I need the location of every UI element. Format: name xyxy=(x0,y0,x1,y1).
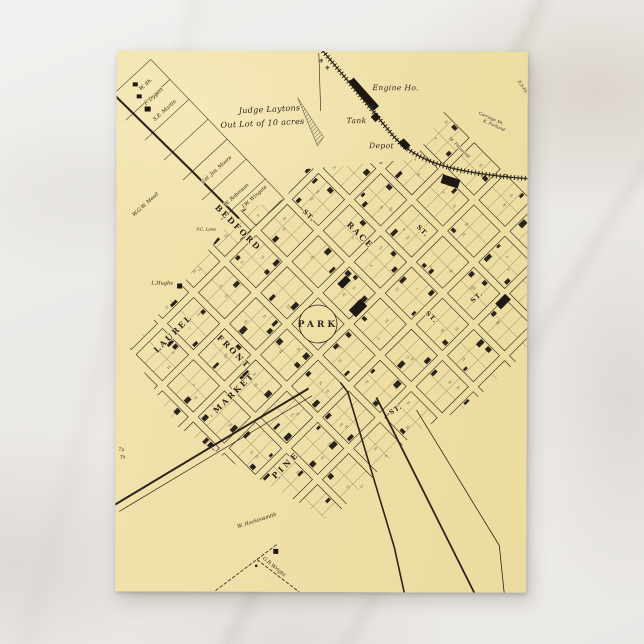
building-footprint xyxy=(312,399,321,407)
lot-number: 20 xyxy=(332,165,338,171)
lot-number: 7 xyxy=(188,327,192,331)
lot-line xyxy=(496,378,522,404)
building-footprint xyxy=(451,227,457,233)
band-lot-line xyxy=(115,59,151,100)
lot-line xyxy=(123,315,149,341)
lot-line xyxy=(237,555,263,581)
block-outline xyxy=(115,359,157,411)
street-label-st-a: ST. xyxy=(388,402,404,416)
depot-label: Depot xyxy=(368,141,394,150)
lot-number: 20 xyxy=(163,227,169,233)
lot-line xyxy=(336,467,362,493)
building-footprint xyxy=(179,246,186,253)
lot-line xyxy=(185,253,211,279)
lot-number: 27 xyxy=(164,305,170,311)
building-footprint xyxy=(424,357,432,365)
lot-number: 20 xyxy=(403,471,409,477)
building-footprint xyxy=(295,197,301,203)
lot-number: 20 xyxy=(373,446,379,452)
building-footprint xyxy=(239,325,248,334)
lot-number: 18 xyxy=(337,358,343,364)
lot-number: 26 xyxy=(405,425,411,431)
house xyxy=(255,564,258,567)
lot-line xyxy=(274,217,300,243)
building-footprint xyxy=(324,147,331,154)
lot-number: 79 xyxy=(309,196,315,202)
lot-line xyxy=(456,400,482,426)
building-footprint xyxy=(431,369,438,376)
lot-number: 8 xyxy=(180,440,184,444)
lot-line xyxy=(243,248,269,274)
building-footprint xyxy=(347,434,354,441)
lot-number: 26 xyxy=(416,172,422,178)
southwest-road xyxy=(115,388,307,505)
lot-line xyxy=(527,223,528,249)
lot-number: 19 xyxy=(290,158,296,164)
lot-number: 79 xyxy=(405,235,411,241)
lot-line xyxy=(273,591,299,593)
lot-number: 10 xyxy=(341,292,347,298)
house xyxy=(133,82,138,86)
building-footprint xyxy=(272,259,280,267)
out-lot-label-line1: Judge Laytons xyxy=(237,103,301,115)
block-outline xyxy=(260,578,312,593)
building-footprint xyxy=(173,485,178,490)
lot-line xyxy=(429,373,455,399)
block-outline xyxy=(229,484,281,536)
lot-number: 78 xyxy=(130,249,136,255)
lot-number: 78 xyxy=(364,379,370,385)
block-outline xyxy=(324,50,376,70)
building-footprint xyxy=(269,137,278,146)
lot-line xyxy=(527,347,528,373)
owner-label: G.B.Wright xyxy=(261,556,287,579)
block-outline xyxy=(115,266,126,318)
large-building xyxy=(495,294,511,310)
block-outline xyxy=(291,547,343,593)
lot-number: 27 xyxy=(395,287,401,293)
lot-line xyxy=(399,93,425,119)
building-footprint xyxy=(172,343,178,349)
lot-line xyxy=(211,466,237,492)
lot-line xyxy=(279,160,305,186)
house xyxy=(273,549,278,554)
lot-line xyxy=(399,156,425,182)
lot-number: 8 xyxy=(287,156,291,160)
lot-number: 20 xyxy=(339,161,345,167)
block-outline xyxy=(136,391,188,443)
building-footprint xyxy=(258,148,267,157)
lot-number: 9 xyxy=(255,569,259,573)
building-footprint xyxy=(223,519,230,526)
lot-line xyxy=(185,191,211,217)
lot-number: 8 xyxy=(442,190,446,194)
street-label-st-b: ST. xyxy=(424,309,440,325)
building-footprint xyxy=(359,131,367,139)
lot-number: 20 xyxy=(282,216,288,222)
building-footprint xyxy=(245,553,253,561)
lot-number: 79 xyxy=(320,568,326,574)
building-footprint xyxy=(125,463,131,469)
lot-line xyxy=(341,50,367,61)
lot-line xyxy=(118,373,144,399)
building-footprint xyxy=(325,413,332,420)
lot-number: 79 xyxy=(309,255,315,261)
lot-number: 8 xyxy=(134,378,138,382)
building-footprint xyxy=(201,414,209,422)
lot-line xyxy=(211,528,237,554)
building-footprint xyxy=(428,289,435,296)
building-footprint xyxy=(311,524,317,530)
building-footprint xyxy=(170,259,176,265)
lot-number: 27 xyxy=(495,320,501,326)
lot-number: 10 xyxy=(357,109,363,115)
lot-line xyxy=(367,249,393,275)
lot-line xyxy=(310,66,336,92)
owner-label: W. Hockensmith xyxy=(237,512,278,530)
building-footprint xyxy=(511,375,520,384)
large-building xyxy=(337,275,350,288)
building-footprint xyxy=(386,496,392,502)
building-footprint xyxy=(375,525,382,532)
building-footprint xyxy=(295,567,301,573)
lot-line xyxy=(523,343,528,369)
building-footprint xyxy=(145,266,150,271)
lot-number: 18 xyxy=(253,382,259,388)
lot-number: 19 xyxy=(457,448,463,454)
building-footprint xyxy=(344,370,350,376)
lot-line xyxy=(308,564,334,590)
lot-number: 9 xyxy=(461,417,465,421)
building-footprint xyxy=(240,164,248,172)
lot-line xyxy=(364,58,390,84)
lot-number: 8 xyxy=(167,483,171,487)
building-footprint xyxy=(345,332,352,339)
lot-number: 10 xyxy=(508,193,514,199)
block-outline xyxy=(479,236,528,288)
lot-number: 20 xyxy=(123,253,129,259)
building-footprint xyxy=(140,473,148,481)
lot-line xyxy=(277,533,303,559)
house xyxy=(177,284,182,289)
lot-number: 8 xyxy=(404,96,408,100)
main-road-northwest xyxy=(115,93,239,217)
lot-line xyxy=(367,436,393,462)
lot-line xyxy=(270,151,296,177)
lot-line xyxy=(118,248,144,274)
building-footprint xyxy=(395,171,403,179)
lot-number: 7 xyxy=(246,503,250,507)
lot-number: 26 xyxy=(201,188,207,194)
lot-line xyxy=(429,436,455,462)
building-footprint xyxy=(394,67,400,73)
lot-line xyxy=(304,560,330,586)
lot-number: 18 xyxy=(166,364,172,370)
lot-line xyxy=(274,155,300,181)
building-footprint xyxy=(463,399,469,405)
lot-number: 78 xyxy=(223,233,229,239)
building-footprint xyxy=(225,494,232,501)
lot-number: 19 xyxy=(388,206,394,212)
lot-number: 7 xyxy=(416,287,420,291)
building-footprint xyxy=(233,281,240,288)
lot-number: 10 xyxy=(249,450,255,456)
building-footprint xyxy=(170,299,178,307)
lot-number: 79 xyxy=(342,532,348,538)
lot-number: 20 xyxy=(344,549,350,555)
lot-number: 26 xyxy=(249,582,255,588)
lot-number: 9 xyxy=(492,391,496,395)
building-footprint xyxy=(329,267,336,274)
building-footprint xyxy=(358,52,364,58)
building-footprint xyxy=(397,360,406,369)
band-lot-line xyxy=(183,139,227,180)
building-footprint xyxy=(212,362,219,369)
lot-number: 27 xyxy=(302,506,308,512)
owner-label: W.G.W. Mead xyxy=(131,191,160,217)
building-footprint xyxy=(357,133,366,142)
building-footprint xyxy=(497,398,506,407)
southeast-road-west-edge xyxy=(376,398,475,592)
lot-number: 18 xyxy=(461,232,467,238)
lot-number: 12 xyxy=(359,484,365,490)
lot-line xyxy=(123,253,149,279)
lot-number: 78 xyxy=(193,395,199,401)
building-footprint xyxy=(254,587,261,592)
lot-number: 8 xyxy=(434,136,438,140)
building-footprint xyxy=(451,188,457,194)
band-lot-line xyxy=(164,119,208,160)
lot-line xyxy=(492,249,518,275)
street-label-market: MARKET xyxy=(211,370,256,415)
owner-label: L.Hughs xyxy=(150,280,173,286)
building-footprint xyxy=(390,454,397,461)
building-footprint xyxy=(171,254,178,261)
lot-line xyxy=(523,280,528,306)
lot-number: 18 xyxy=(375,65,381,71)
block-outline xyxy=(115,297,157,349)
owner-label: S.E. Martin xyxy=(152,99,178,123)
lot-number: 26 xyxy=(400,102,406,108)
lot-number: 26 xyxy=(440,328,446,334)
marble-background: 7899779268981882020926791978208198789278… xyxy=(0,0,644,644)
building-footprint xyxy=(140,250,147,257)
building-footprint xyxy=(316,425,321,430)
lot-number: 8 xyxy=(376,337,380,341)
lot-number: 20 xyxy=(255,508,261,514)
lot-line xyxy=(145,399,171,425)
lot-line xyxy=(398,280,424,306)
lot-number: 9 xyxy=(329,132,333,136)
street-label-pine: PINE xyxy=(269,449,301,481)
block-outline xyxy=(510,205,528,257)
lot-line xyxy=(150,217,176,243)
lot-number: 26 xyxy=(464,222,470,228)
owner-label: W. Sh. xyxy=(138,77,154,92)
lot-line xyxy=(212,279,238,305)
lot-line xyxy=(115,430,140,456)
lot-number: 78 xyxy=(448,269,454,275)
block-outline xyxy=(478,361,528,413)
lot-number: 27 xyxy=(427,442,433,448)
lot-number: 10 xyxy=(243,319,249,325)
tank-label: Tank xyxy=(347,116,367,125)
owner-label: F. Dygert xyxy=(143,86,166,107)
building-footprint xyxy=(141,286,148,293)
block-outline xyxy=(322,516,374,568)
building-footprint xyxy=(312,178,318,184)
lot-number: 10 xyxy=(344,424,350,430)
lot-number: 18 xyxy=(208,506,214,512)
lot-number: 26 xyxy=(125,456,131,462)
lot-line xyxy=(122,439,148,465)
lot-number: 78 xyxy=(406,400,412,406)
lot-line xyxy=(115,368,140,394)
lot-number: 20 xyxy=(215,534,221,540)
lot-line xyxy=(145,275,171,301)
lot-line xyxy=(206,524,232,550)
lot-number: 26 xyxy=(163,287,169,293)
block-outline xyxy=(353,485,405,537)
lot-number: 78 xyxy=(227,423,233,429)
building-footprint xyxy=(156,243,164,251)
lot-line xyxy=(492,187,518,213)
lot-number: 20 xyxy=(451,204,457,210)
block-outline xyxy=(510,267,528,319)
lot-number: 20 xyxy=(214,536,220,542)
block-outline xyxy=(479,174,528,226)
lot-number: 26 xyxy=(303,573,309,579)
lot-number: 7 xyxy=(192,383,196,387)
railroad-line xyxy=(322,51,527,179)
block-outline xyxy=(416,423,468,475)
edge-fragment-label: Th xyxy=(120,454,126,459)
building-footprint xyxy=(291,527,298,534)
building-footprint xyxy=(200,309,206,315)
dashed-road-b xyxy=(257,560,299,592)
lot-line xyxy=(332,89,358,115)
lot-line xyxy=(176,182,202,208)
lot-number: 20 xyxy=(194,196,200,202)
lot-line xyxy=(491,374,517,400)
lot-line xyxy=(367,311,393,337)
lot-line xyxy=(527,285,528,311)
lot-line xyxy=(460,405,486,431)
block-outline xyxy=(167,422,219,474)
building-footprint xyxy=(519,193,524,198)
lot-number: 18 xyxy=(479,426,485,432)
lot-line xyxy=(184,502,210,528)
large-building xyxy=(440,174,460,188)
lot-number: 9 xyxy=(413,158,417,162)
lot-number: 18 xyxy=(454,326,460,332)
block-outline xyxy=(510,330,528,382)
building-footprint xyxy=(127,339,135,347)
lot-number: 26 xyxy=(159,236,165,242)
lot-number: 10 xyxy=(278,349,284,355)
building-footprint xyxy=(269,294,276,301)
lot-line xyxy=(242,560,268,586)
lot-number: 8 xyxy=(507,267,511,271)
lot-line xyxy=(115,284,118,310)
street-label-race-st: ST. xyxy=(415,223,431,239)
lot-number: 19 xyxy=(461,357,467,363)
railroad xyxy=(318,51,527,179)
building-footprint xyxy=(421,263,427,269)
lot-line xyxy=(176,431,202,457)
lot-number: 79 xyxy=(447,380,453,386)
lot-number: 9 xyxy=(351,236,355,240)
building-footprint xyxy=(330,565,336,571)
building-footprint xyxy=(124,335,133,344)
lot-number: 27 xyxy=(277,531,283,537)
lot-line xyxy=(331,524,357,550)
building-footprint xyxy=(305,82,312,89)
lot-number: 9 xyxy=(369,264,373,268)
lot-line xyxy=(461,218,487,244)
lot-number: 78 xyxy=(135,322,141,328)
building-footprint xyxy=(140,311,146,317)
building-footprint xyxy=(159,435,165,441)
lot-line xyxy=(367,498,393,524)
lot-number: 19 xyxy=(508,375,514,381)
building-footprint xyxy=(272,235,279,242)
lot-number: 19 xyxy=(254,454,260,460)
vintage-town-map: 7899779268981882020926791978208198789278… xyxy=(115,50,528,592)
building-footprint xyxy=(158,494,165,501)
lot-line xyxy=(115,408,117,434)
block-outline xyxy=(167,484,219,536)
lot-line xyxy=(207,462,233,488)
building-footprint xyxy=(267,99,272,104)
lot-line xyxy=(367,373,393,399)
lot-line xyxy=(465,409,491,435)
building-footprint xyxy=(399,276,407,284)
building-footprint xyxy=(298,160,305,167)
house xyxy=(145,106,151,111)
building-footprint xyxy=(407,120,416,129)
lot-number: 9 xyxy=(145,415,149,419)
lot-line xyxy=(335,529,361,555)
building-footprint xyxy=(212,237,220,245)
building-footprint xyxy=(219,518,227,525)
building-footprint xyxy=(320,87,328,95)
block-outline xyxy=(168,173,220,225)
building-footprint xyxy=(521,362,528,369)
lot-number: 78 xyxy=(320,126,326,132)
lot-line xyxy=(398,467,424,493)
owner-label: P.C. Lane xyxy=(196,227,217,232)
building-footprint xyxy=(283,432,292,441)
lot-line xyxy=(269,524,295,550)
owner-label: D.S.Fa. xyxy=(516,78,528,94)
out-lot-label-line2: Out Lot of 10 acres xyxy=(220,117,304,130)
building-footprint xyxy=(362,316,368,322)
lot-line xyxy=(238,493,264,519)
lot-number: 8 xyxy=(141,451,145,455)
building-footprint xyxy=(264,390,273,399)
lot-number: 79 xyxy=(262,314,268,320)
street-label-st-c: ST. xyxy=(469,289,485,304)
building-footprint xyxy=(385,61,392,68)
building-footprint xyxy=(205,513,212,520)
building-footprint xyxy=(309,585,317,593)
lot-number: 79 xyxy=(295,411,301,417)
lot-line xyxy=(340,533,366,559)
building-footprint xyxy=(427,475,434,482)
lot-number: 79 xyxy=(337,345,343,351)
building-footprint xyxy=(229,464,238,473)
